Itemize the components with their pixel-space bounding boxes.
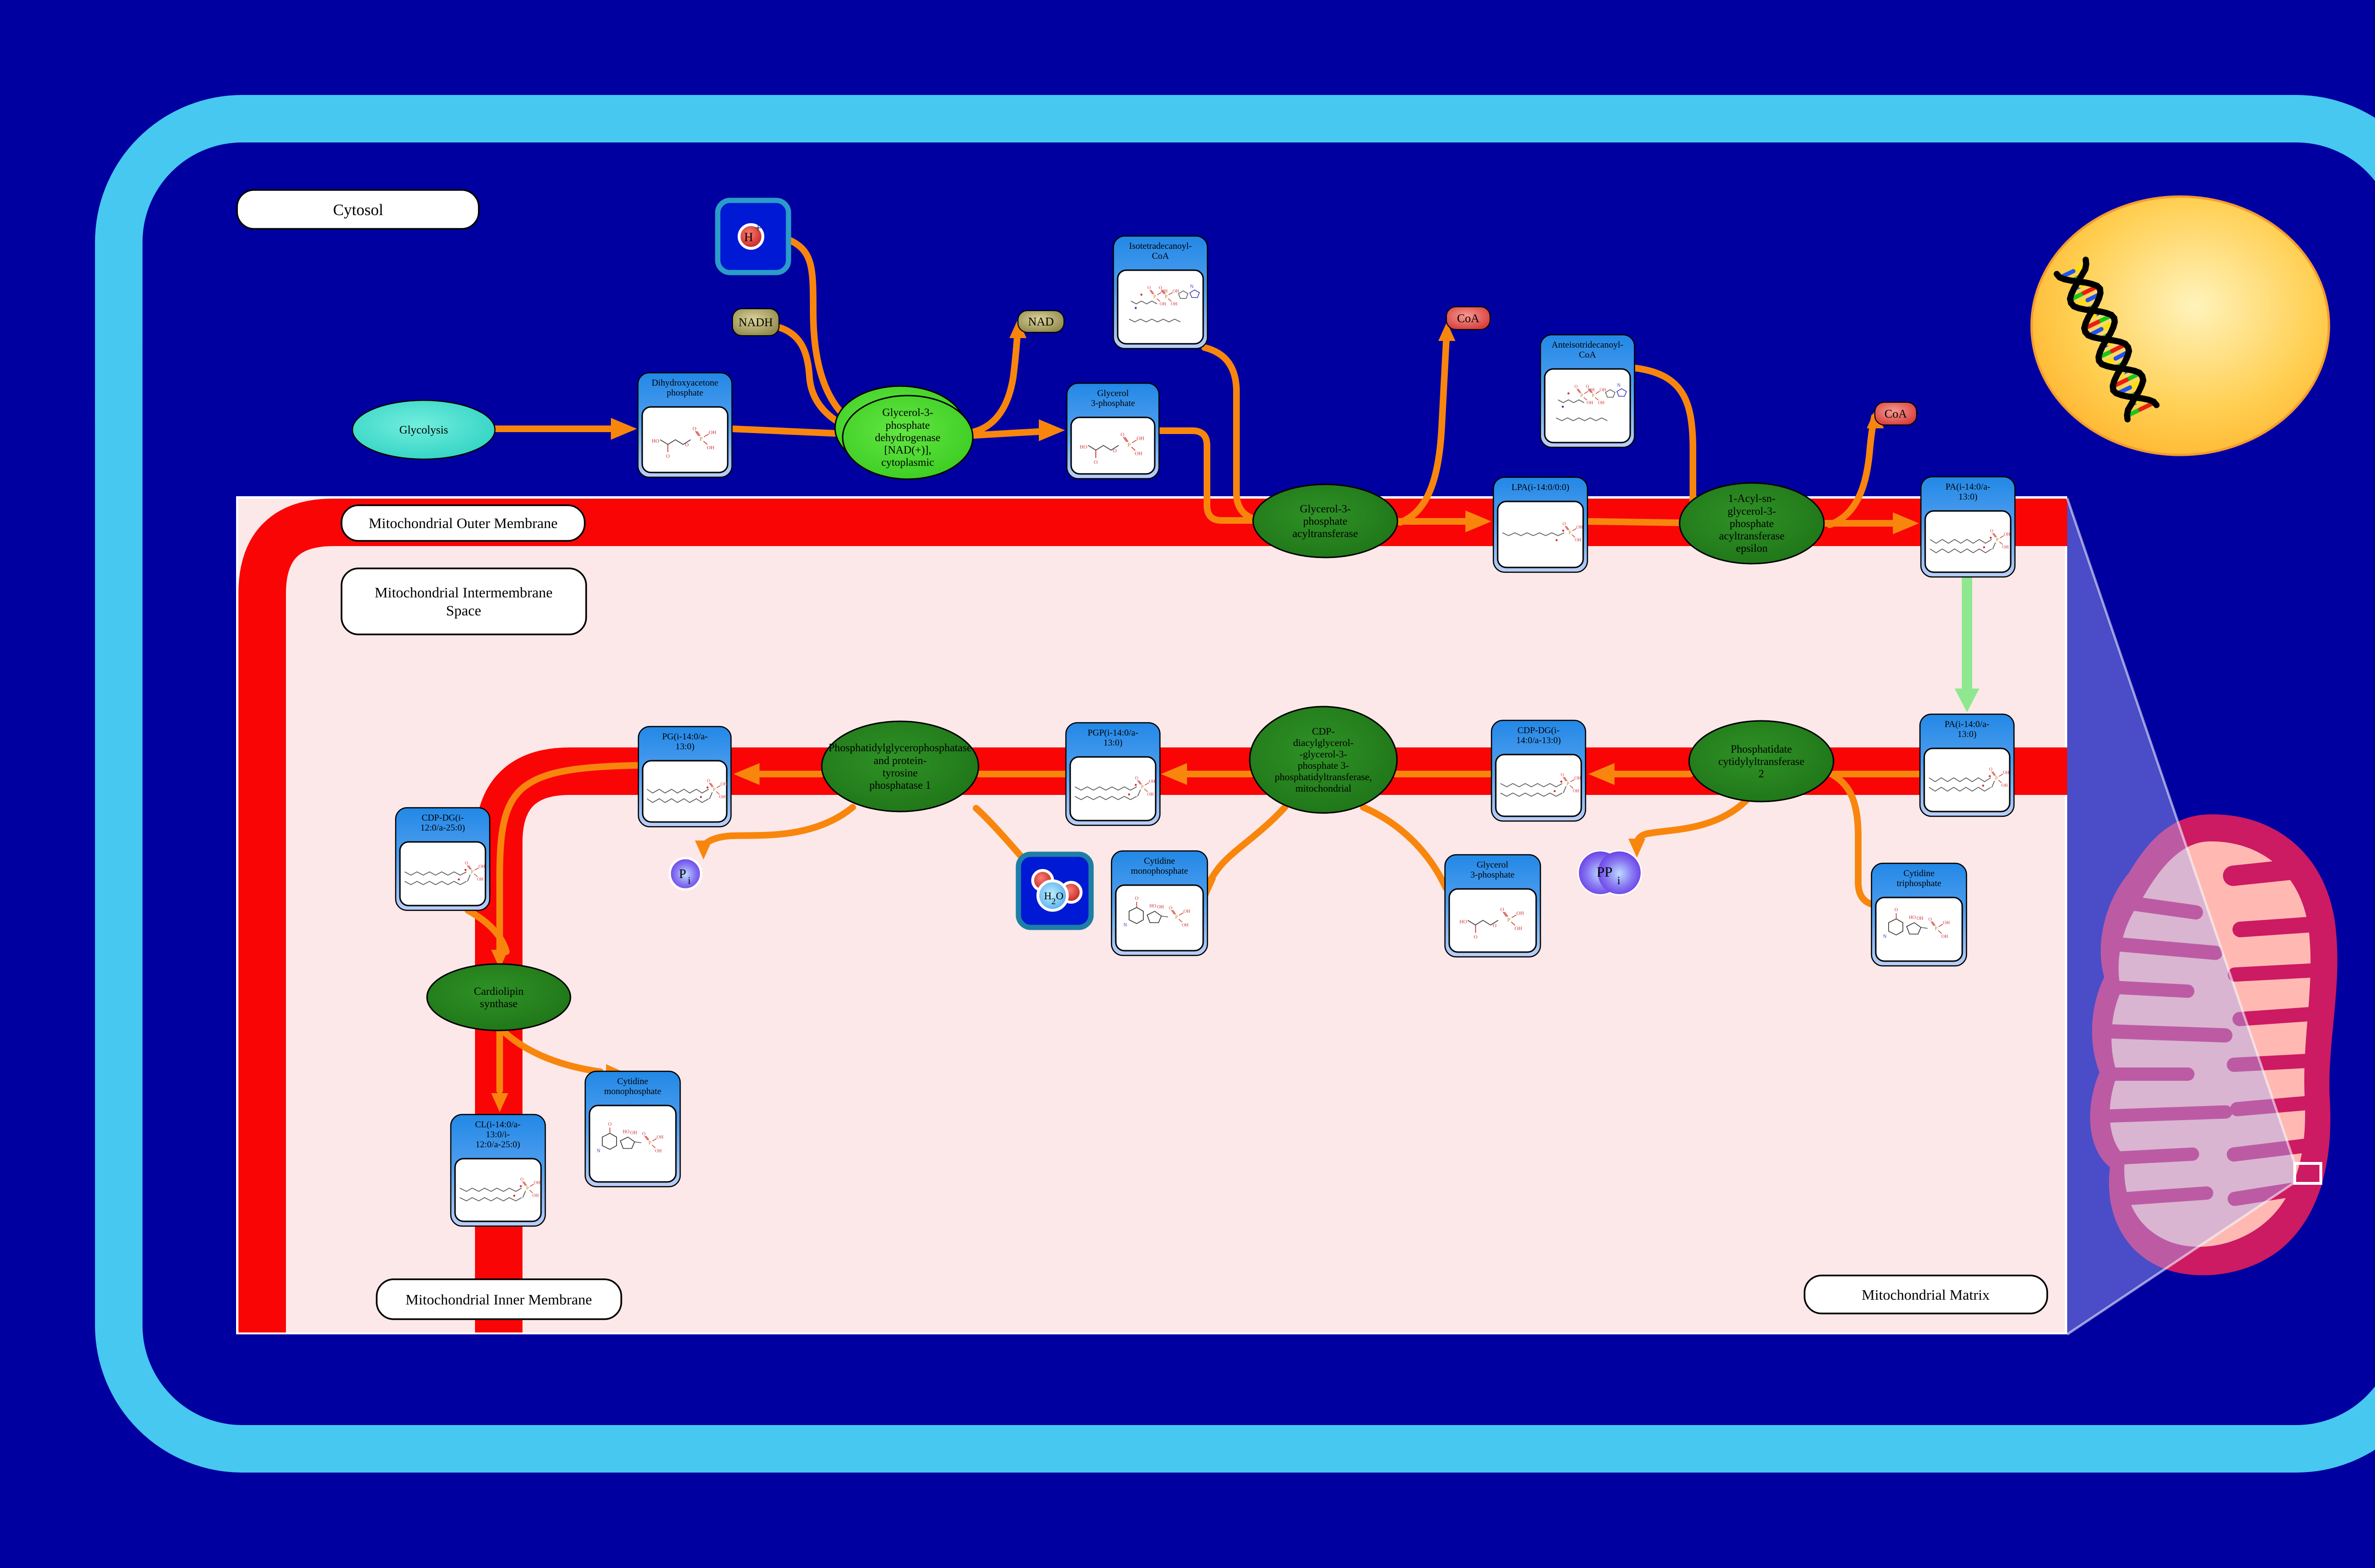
svg-text:13:0): 13:0): [1957, 729, 1976, 739]
svg-text:O: O: [1894, 907, 1898, 913]
svg-text:OH: OH: [1515, 926, 1522, 932]
svg-text:O: O: [465, 861, 468, 866]
svg-text:LPA(i-14:0/0:0): LPA(i-14:0/0:0): [1511, 482, 1569, 492]
svg-text:Glycerol: Glycerol: [1097, 388, 1129, 398]
svg-text:diacylglycerol-: diacylglycerol-: [1293, 737, 1353, 748]
svg-text:Dihydroxyacetone: Dihydroxyacetone: [652, 378, 718, 388]
svg-text:Mitochondrial Outer Membrane: Mitochondrial Outer Membrane: [369, 515, 558, 531]
svg-text:P: P: [1141, 784, 1144, 790]
svg-text:phosphatidyltransferase,: phosphatidyltransferase,: [1275, 771, 1372, 783]
svg-text:Glycerol: Glycerol: [1477, 860, 1508, 870]
svg-text:phosphate 3-: phosphate 3-: [1298, 760, 1349, 771]
svg-text:P: P: [1580, 393, 1583, 398]
svg-text:i: i: [688, 875, 691, 886]
svg-text:PA(i-14:0/a-: PA(i-14:0/a-: [1945, 719, 1989, 729]
svg-text:O: O: [1928, 917, 1932, 922]
svg-text:OH: OH: [1159, 302, 1166, 307]
svg-text:N: N: [1617, 383, 1620, 388]
svg-text:13:0): 13:0): [675, 742, 694, 752]
svg-text:CoA: CoA: [1884, 408, 1907, 421]
svg-text:CoA: CoA: [1579, 350, 1596, 360]
svg-text:OH: OH: [1135, 451, 1142, 457]
svg-text:Glycerol-3-: Glycerol-3-: [882, 406, 933, 418]
svg-text:OH: OH: [532, 1194, 539, 1199]
svg-text:O: O: [1113, 448, 1117, 454]
svg-text:O: O: [1094, 460, 1098, 465]
svg-text:O: O: [1561, 773, 1564, 778]
svg-text:Cytidine: Cytidine: [617, 1077, 648, 1086]
svg-text:acyltransferase: acyltransferase: [1292, 528, 1358, 539]
svg-text:HO: HO: [1149, 904, 1156, 909]
svg-text:P: P: [700, 435, 703, 442]
svg-text:O: O: [685, 442, 689, 448]
svg-text:OH: OH: [709, 430, 716, 435]
svg-text:Space: Space: [446, 602, 481, 619]
svg-text:i: i: [1617, 875, 1620, 887]
svg-text:OH: OH: [479, 865, 485, 869]
svg-text:OH: OH: [2002, 545, 2009, 550]
svg-text:and protein-: and protein-: [874, 755, 927, 766]
svg-text:Isotetradecanoyl-: Isotetradecanoyl-: [1129, 241, 1192, 251]
svg-text:acyltransferase: acyltransferase: [1719, 530, 1785, 542]
svg-text:P: P: [471, 869, 474, 875]
svg-text:O: O: [1563, 522, 1566, 527]
svg-text:OH: OH: [1600, 388, 1606, 393]
svg-text:OH: OH: [2001, 784, 2008, 788]
svg-text:epsilon: epsilon: [1736, 542, 1768, 554]
svg-text:dehydrogenase: dehydrogenase: [875, 432, 940, 444]
svg-text:NAD: NAD: [1028, 316, 1054, 329]
svg-text:OH: OH: [1137, 436, 1144, 442]
svg-text:P: P: [1153, 294, 1156, 300]
svg-text:cytidylyltransferase: cytidylyltransferase: [1718, 756, 1804, 767]
svg-text:CoA: CoA: [1152, 251, 1169, 261]
svg-text:synthase: synthase: [480, 998, 517, 1010]
svg-text:OH: OH: [1586, 401, 1593, 406]
svg-text:P: P: [1567, 781, 1569, 786]
svg-text:Mitochondrial Inner Membrane: Mitochondrial Inner Membrane: [406, 1291, 592, 1308]
svg-text:P: P: [713, 787, 716, 793]
svg-text:O: O: [693, 426, 696, 432]
svg-text:mitochondrial: mitochondrial: [1295, 783, 1351, 794]
svg-text:OH: OH: [1598, 401, 1605, 406]
svg-text:Cardiolipin: Cardiolipin: [474, 985, 524, 997]
svg-text:P: P: [1128, 442, 1131, 448]
svg-text:3-phosphate: 3-phosphate: [1471, 870, 1515, 880]
svg-text:H: H: [1044, 890, 1052, 902]
svg-text:3-phosphate: 3-phosphate: [1091, 398, 1135, 408]
svg-text:OH: OH: [534, 1181, 541, 1186]
svg-text:Cytosol: Cytosol: [333, 201, 383, 219]
svg-text:OH: OH: [721, 782, 727, 787]
svg-text:O: O: [1575, 385, 1578, 389]
svg-text:12:0/a-25:0): 12:0/a-25:0): [475, 1140, 520, 1150]
svg-text:13:0): 13:0): [1103, 738, 1122, 748]
svg-text:12:0/a-25:0): 12:0/a-25:0): [420, 823, 465, 833]
svg-text:cytoplasmic: cytoplasmic: [881, 456, 934, 468]
svg-text:O: O: [707, 779, 710, 784]
svg-text:N: N: [597, 1149, 600, 1154]
svg-text:P: P: [526, 1186, 529, 1191]
svg-text:2: 2: [1052, 897, 1056, 906]
svg-text:OH: OH: [630, 1131, 637, 1136]
svg-text:Glycerol-3-: Glycerol-3-: [1300, 503, 1350, 515]
svg-text:Phosphatidate: Phosphatidate: [1730, 743, 1792, 755]
svg-text:OH: OH: [719, 795, 726, 800]
svg-text:OH: OH: [1575, 776, 1581, 781]
svg-text:Mitochondrial Intermembrane: Mitochondrial Intermembrane: [375, 584, 552, 601]
svg-text:phosphate: phosphate: [666, 388, 703, 398]
svg-text:OH: OH: [1917, 916, 1923, 921]
svg-text:OH: OH: [1941, 934, 1948, 939]
svg-text:N: N: [1123, 923, 1127, 928]
svg-text:Mitochondrial Matrix: Mitochondrial Matrix: [1862, 1286, 1990, 1303]
svg-text:Cytidine: Cytidine: [1903, 869, 1934, 878]
svg-text:P: P: [648, 1140, 651, 1146]
svg-text:O: O: [1169, 906, 1172, 911]
svg-text:Phosphatidylglycerophosphatase: Phosphatidylglycerophosphatase: [828, 742, 972, 754]
svg-text:OH: OH: [1182, 923, 1188, 928]
svg-text:O: O: [642, 1131, 646, 1136]
svg-text:+: +: [755, 222, 761, 235]
svg-text:1-Acyl-sn-: 1-Acyl-sn-: [1728, 492, 1776, 504]
svg-text:O: O: [608, 1122, 611, 1127]
svg-text:Anteisotridecanoyl-: Anteisotridecanoyl-: [1552, 340, 1624, 350]
svg-text:HO: HO: [623, 1130, 629, 1135]
svg-text:P: P: [1996, 538, 1999, 543]
svg-text:CDP-DG(i-: CDP-DG(i-: [1518, 726, 1560, 736]
svg-text:HO: HO: [1080, 444, 1087, 450]
svg-text:14:0/a-13:0): 14:0/a-13:0): [1516, 736, 1561, 746]
svg-text:P: P: [1935, 926, 1938, 932]
svg-text:O: O: [1159, 286, 1162, 291]
svg-text:P: P: [1592, 393, 1595, 398]
svg-text:OH: OH: [1173, 289, 1179, 294]
svg-text:P: P: [1568, 530, 1571, 536]
svg-text:CDP-: CDP-: [1312, 726, 1335, 737]
svg-text:tyrosine: tyrosine: [883, 767, 918, 779]
svg-text:OH: OH: [1183, 909, 1190, 914]
svg-text:P: P: [1507, 916, 1510, 923]
svg-text:OH: OH: [655, 1148, 662, 1153]
svg-text:O: O: [1474, 935, 1478, 940]
svg-text:O: O: [1586, 385, 1589, 389]
svg-text:13:0/i-: 13:0/i-: [486, 1130, 510, 1140]
svg-text:-glycerol-3-: -glycerol-3-: [1300, 748, 1347, 760]
svg-text:PGP(i-14:0/a-: PGP(i-14:0/a-: [1088, 728, 1139, 738]
svg-text:phosphate: phosphate: [1729, 518, 1774, 529]
svg-text:OH: OH: [1577, 525, 1583, 530]
svg-text:monophosphate: monophosphate: [1131, 866, 1188, 876]
svg-text:OH: OH: [656, 1135, 663, 1140]
svg-text:monophosphate: monophosphate: [604, 1086, 661, 1096]
svg-text:O: O: [1121, 432, 1124, 438]
svg-text:H: H: [744, 230, 753, 244]
svg-text:HO: HO: [1460, 919, 1467, 925]
svg-text:OH: OH: [1171, 302, 1178, 307]
svg-text:OH: OH: [707, 445, 714, 451]
svg-text:OH: OH: [2003, 771, 2010, 775]
svg-text:OH: OH: [1517, 911, 1524, 916]
svg-text:PP: PP: [1596, 864, 1612, 880]
svg-text:O: O: [1493, 923, 1497, 929]
svg-text:OH: OH: [2004, 532, 2011, 537]
svg-text:2: 2: [1758, 768, 1764, 780]
svg-text:O: O: [1135, 896, 1138, 901]
svg-text:N: N: [1190, 284, 1193, 290]
svg-text:CoA: CoA: [1457, 312, 1479, 325]
svg-text:Glycolysis: Glycolysis: [399, 424, 448, 436]
svg-text:NADH: NADH: [739, 316, 773, 329]
svg-text:O: O: [1501, 907, 1504, 913]
svg-text:P: P: [1995, 776, 1998, 781]
svg-text:P: P: [1165, 294, 1168, 300]
svg-text:PA(i-14:0/a-: PA(i-14:0/a-: [1946, 482, 1990, 492]
svg-text:glycerol-3-: glycerol-3-: [1728, 505, 1776, 517]
svg-text:O: O: [1990, 529, 1994, 534]
svg-text:phosphatase 1: phosphatase 1: [869, 779, 931, 791]
svg-text:O: O: [1989, 767, 1993, 772]
svg-text:P: P: [1175, 915, 1178, 920]
svg-text:triphosphate: triphosphate: [1897, 878, 1941, 888]
svg-text:phosphate: phosphate: [885, 419, 930, 431]
svg-text:CDP-DG(i-: CDP-DG(i-: [422, 813, 464, 823]
svg-text:OH: OH: [1575, 538, 1581, 543]
svg-text:[NAD(+)],: [NAD(+)],: [884, 444, 931, 456]
svg-text:O: O: [1056, 890, 1064, 902]
svg-text:Cytidine: Cytidine: [1144, 856, 1175, 866]
svg-text:OH: OH: [1157, 905, 1164, 910]
svg-text:phosphate: phosphate: [1303, 515, 1347, 527]
svg-text:OH: OH: [1149, 780, 1156, 784]
svg-text:O: O: [666, 453, 670, 459]
svg-text:O: O: [520, 1178, 523, 1182]
svg-text:CL(i-14:0/a-: CL(i-14:0/a-: [475, 1120, 521, 1130]
svg-text:OH: OH: [1573, 789, 1579, 794]
svg-text:N: N: [1883, 934, 1886, 939]
svg-text:OH: OH: [1147, 793, 1154, 797]
svg-text:P: P: [679, 867, 686, 881]
svg-text:O: O: [1135, 776, 1139, 781]
svg-text:13:0): 13:0): [1958, 492, 1977, 502]
svg-text:HO: HO: [1909, 915, 1916, 920]
svg-text:PG(i-14:0/a-: PG(i-14:0/a-: [662, 732, 708, 742]
svg-text:HO: HO: [652, 438, 659, 444]
svg-text:OH: OH: [1943, 920, 1949, 926]
svg-text:OH: OH: [477, 878, 484, 882]
svg-text:O: O: [1148, 286, 1151, 291]
